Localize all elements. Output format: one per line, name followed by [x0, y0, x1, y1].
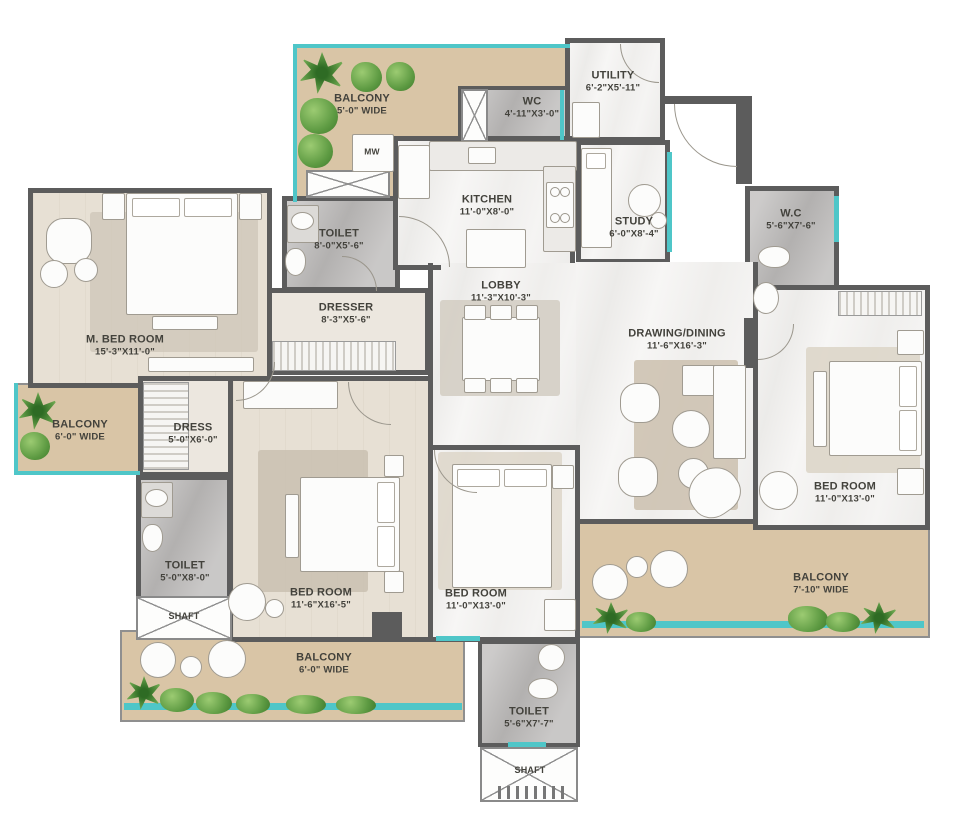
plant-icon: [236, 694, 270, 714]
study-daybed-icon: [581, 148, 612, 248]
room-name: BALCONY: [793, 571, 849, 585]
kitchen-tall-unit-icon: [398, 145, 430, 199]
bedroom-right-chair-icon: [759, 471, 798, 510]
m-bedroom-side-table-icon: [40, 260, 68, 288]
label-wc-top: WC 4'-11"X3'-0": [505, 95, 559, 122]
room-name: M. BED ROOM: [86, 333, 164, 347]
room-name: BALCONY: [52, 418, 108, 432]
dining-table-icon: [462, 317, 540, 381]
bedroom-right-nightstand-icon: [897, 330, 924, 355]
balcony-left-window-strip: [14, 383, 18, 475]
shaft-wc-top: [461, 89, 488, 142]
room-name: BED ROOM: [814, 480, 876, 494]
toilet-top-sink-icon: [291, 212, 314, 230]
label-drawing-dining: DRAWING/DINING 11'-6"X16'-3": [628, 327, 726, 354]
label-bedroom-right: BED ROOM 11'-0"X13'-0": [814, 480, 876, 507]
room-dims: 5'-0" WIDE: [334, 106, 390, 118]
plant-icon: [286, 695, 326, 714]
lounge-chair-icon: [620, 383, 660, 423]
toilet-bottom-wc-icon: [528, 678, 558, 699]
room-dims: 8'-3"X5'-6": [319, 315, 374, 327]
label-dress: DRESS 5'-0"X6'-0": [168, 421, 218, 448]
label-wc-right: W.C 5'-6"X7'-6": [766, 207, 816, 234]
label-shaft-left: SHAFT: [169, 611, 200, 623]
entrance-door-arc: [674, 104, 737, 167]
label-toilet-left: TOILET 5'-0"X8'-0": [160, 559, 210, 586]
label-study: STUDY 6'-0"X8'-4": [609, 215, 659, 242]
dining-chair-icon: [516, 378, 538, 393]
m-bedroom-nightstand-icon: [239, 193, 262, 220]
kitchen-sink-icon: [468, 147, 496, 164]
m-bedroom-side-table-icon: [74, 258, 98, 282]
balcony-top-window-strip: [293, 44, 570, 48]
shaft-bottom-vent: [498, 786, 570, 799]
label-toilet-top: TOILET 8'-0"X5'-6": [314, 227, 364, 254]
label-utility: UTILITY 6'-2"X5'-11": [586, 69, 640, 96]
balcony-table-icon: [180, 656, 202, 678]
balcony-chair-icon: [140, 642, 176, 678]
room-dims: 11'-0"X13'-0": [814, 494, 876, 506]
lounge-chair-icon: [618, 457, 658, 497]
sofa-icon: [713, 365, 746, 459]
plant-icon: [298, 134, 333, 168]
room-dims: 11'-3"X10'-3": [471, 293, 531, 305]
room-name: TOILET: [504, 705, 554, 719]
wc-right-toilet-icon: [758, 246, 790, 268]
balcony-top-shaft: [306, 170, 390, 198]
bedroom-left-nightstand-icon: [384, 571, 404, 593]
wc-right-window: [834, 196, 839, 242]
room-dims: 5'-6"X7'-6": [766, 221, 816, 233]
m-bedroom-nightstand-icon: [102, 193, 125, 220]
bedroom-center-cabinet-icon: [544, 599, 576, 631]
room-dims: 15'-3"X11'-0": [86, 347, 164, 359]
toilet-top-wc-icon: [285, 248, 306, 276]
plant-icon: [788, 606, 828, 632]
room-name: BED ROOM: [290, 586, 352, 600]
room-dims: 6'-2"X5'-11": [586, 83, 640, 95]
label-balcony-left: BALCONY 6'-0" WIDE: [52, 418, 108, 445]
room-name: LOBBY: [471, 279, 531, 293]
bedroom-left-chair-icon: [228, 583, 266, 621]
room-name: UTILITY: [586, 69, 640, 83]
room-dims: 6'-0" WIDE: [52, 432, 108, 444]
room-name: BALCONY: [334, 92, 390, 106]
utility-sink-icon: [572, 102, 600, 138]
room-name: W.C: [766, 207, 816, 221]
coffee-table-icon: [672, 410, 710, 448]
balcony-left-window-strip-bottom: [14, 471, 140, 475]
room-dims: 8'-0"X5'-6": [314, 241, 364, 253]
dining-chair-icon: [516, 305, 538, 320]
m-bedroom-bench-icon: [152, 316, 218, 330]
plant-icon: [386, 62, 415, 91]
room-name: DRAWING/DINING: [628, 327, 726, 341]
m-bedroom-bed-icon: [126, 193, 238, 315]
washing-machine-label: MW: [364, 146, 380, 157]
label-lobby: LOBBY 11'-3"X10'-3": [471, 279, 531, 306]
plant-icon: [160, 688, 194, 712]
balcony-table-icon: [626, 556, 648, 578]
label-kitchen: KITCHEN 11'-0"X8'-0": [460, 193, 514, 220]
room-name: TOILET: [160, 559, 210, 573]
label-balcony-top: BALCONY 5'-0" WIDE: [334, 92, 390, 119]
dining-chair-icon: [464, 378, 486, 393]
toilet-left-wc-icon: [142, 524, 163, 552]
bedroom-center-nightstand-icon: [552, 465, 574, 489]
bedroom-left-nightstand-icon: [384, 455, 404, 477]
bedroom-left-pillar: [372, 612, 402, 642]
plant-icon: [20, 432, 50, 460]
bedroom-center-window: [436, 636, 480, 641]
room-name: WC: [505, 95, 559, 109]
room-name: TOILET: [314, 227, 364, 241]
room-dims: 11'-6"X16'-5": [290, 600, 352, 612]
bedroom-left-table-icon: [265, 599, 284, 618]
plant-icon: [626, 612, 656, 632]
plant-icon: [826, 612, 860, 632]
bedroom-right-bench-icon: [813, 371, 827, 447]
room-name: DRESS: [168, 421, 218, 435]
room-dims: 5'-0"X6'-0": [168, 435, 218, 447]
toilet-left-sink-icon: [145, 489, 168, 507]
label-bedroom-left: BED ROOM 11'-6"X16'-5": [290, 586, 352, 613]
label-balcony-right: BALCONY 7'-10" WIDE: [793, 571, 849, 598]
dining-chair-icon: [490, 378, 512, 393]
label-toilet-bottom: TOILET 5'-6"X7'-7": [504, 705, 554, 732]
balcony-chair-icon: [208, 640, 246, 678]
room-dims: 7'-10" WIDE: [793, 585, 849, 597]
room-dims: 6'-0"X8'-4": [609, 229, 659, 241]
label-shaft-bottom: SHAFT: [515, 765, 546, 777]
balcony-top-window-strip-left: [293, 44, 297, 202]
bedroom-right-wardrobe: [838, 291, 922, 316]
plant-icon: [351, 62, 382, 92]
dresser-wardrobe: [272, 341, 396, 371]
dining-chair-icon: [490, 305, 512, 320]
room-dims: 11'-0"X8'-0": [460, 207, 514, 219]
room-dims: 6'-0" WIDE: [296, 665, 352, 677]
floor-plan: MW BALCONY 5'-0" WIDE WC 4'-11"X3'-0" UT…: [0, 0, 973, 837]
room-dims: 5'-6"X7'-7": [504, 719, 554, 731]
bedroom-right-bed-icon: [829, 361, 922, 456]
wc-right-sink-icon: [753, 282, 779, 314]
stove-icon: [546, 182, 574, 228]
room-name: KITCHEN: [460, 193, 514, 207]
wc-top-window: [560, 90, 564, 140]
room-dims: 11'-0"X13'-0": [445, 601, 507, 613]
dining-chair-icon: [464, 305, 486, 320]
room-dims: 11'-6"X16'-3": [628, 341, 726, 353]
label-dresser: DRESSER 8'-3"X5'-6": [319, 301, 374, 328]
label-balcony-bottom: BALCONY 6'-0" WIDE: [296, 651, 352, 678]
label-bedroom-center: BED ROOM 11'-0"X13'-0": [445, 587, 507, 614]
bedroom-right-nightstand-icon: [897, 468, 924, 495]
entrance-pillar: [736, 98, 752, 184]
balcony-chair-icon: [650, 550, 688, 588]
plant-icon: [336, 696, 376, 714]
drawing-wc-pillar: [744, 318, 758, 368]
balcony-chair-icon: [592, 564, 628, 600]
kitchen-island-icon: [466, 229, 526, 268]
label-m-bedroom: M. BED ROOM 15'-3"X11'-0": [86, 333, 164, 360]
room-name: STUDY: [609, 215, 659, 229]
bedroom-left-bed-icon: [300, 477, 400, 572]
study-window: [667, 152, 672, 252]
room-name: BED ROOM: [445, 587, 507, 601]
room-name: DRESSER: [319, 301, 374, 315]
room-dims: 5'-0"X8'-0": [160, 573, 210, 585]
toilet-bottom-sink-icon: [538, 644, 565, 671]
bedroom-left-bench-icon: [285, 494, 299, 558]
room-dims: 4'-11"X3'-0": [505, 109, 559, 121]
plant-icon: [300, 98, 338, 134]
plant-icon: [196, 692, 232, 714]
room-name: BALCONY: [296, 651, 352, 665]
